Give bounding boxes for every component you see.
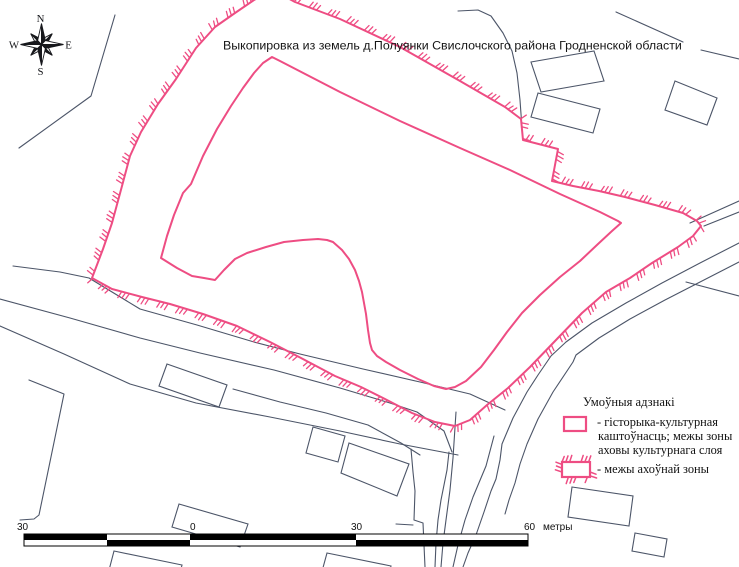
svg-text:каштоўнасць; межы зоны: каштоўнасць; межы зоны [598, 429, 733, 443]
svg-text:30: 30 [351, 522, 363, 533]
svg-text:- гісторыка-культурная: - гісторыка-культурная [597, 415, 718, 429]
svg-text:Умоўныя адзнакі: Умоўныя адзнакі [583, 395, 675, 409]
svg-text:N: N [37, 13, 45, 25]
svg-text:E: E [65, 40, 72, 52]
svg-text:60: 60 [524, 522, 536, 533]
svg-text:S: S [37, 66, 43, 78]
svg-text:метры: метры [543, 522, 572, 533]
svg-text:0: 0 [190, 522, 196, 533]
svg-text:30: 30 [17, 522, 29, 533]
svg-text:W: W [9, 40, 20, 52]
svg-text:- межы ахоўнай зоны: - межы ахоўнай зоны [597, 462, 710, 476]
svg-text:аховы культурнага слоя: аховы культурнага слоя [598, 443, 723, 457]
svg-text:Выкопировка из земель д.Полуян: Выкопировка из земель д.Полуянки Свислоч… [223, 39, 682, 53]
